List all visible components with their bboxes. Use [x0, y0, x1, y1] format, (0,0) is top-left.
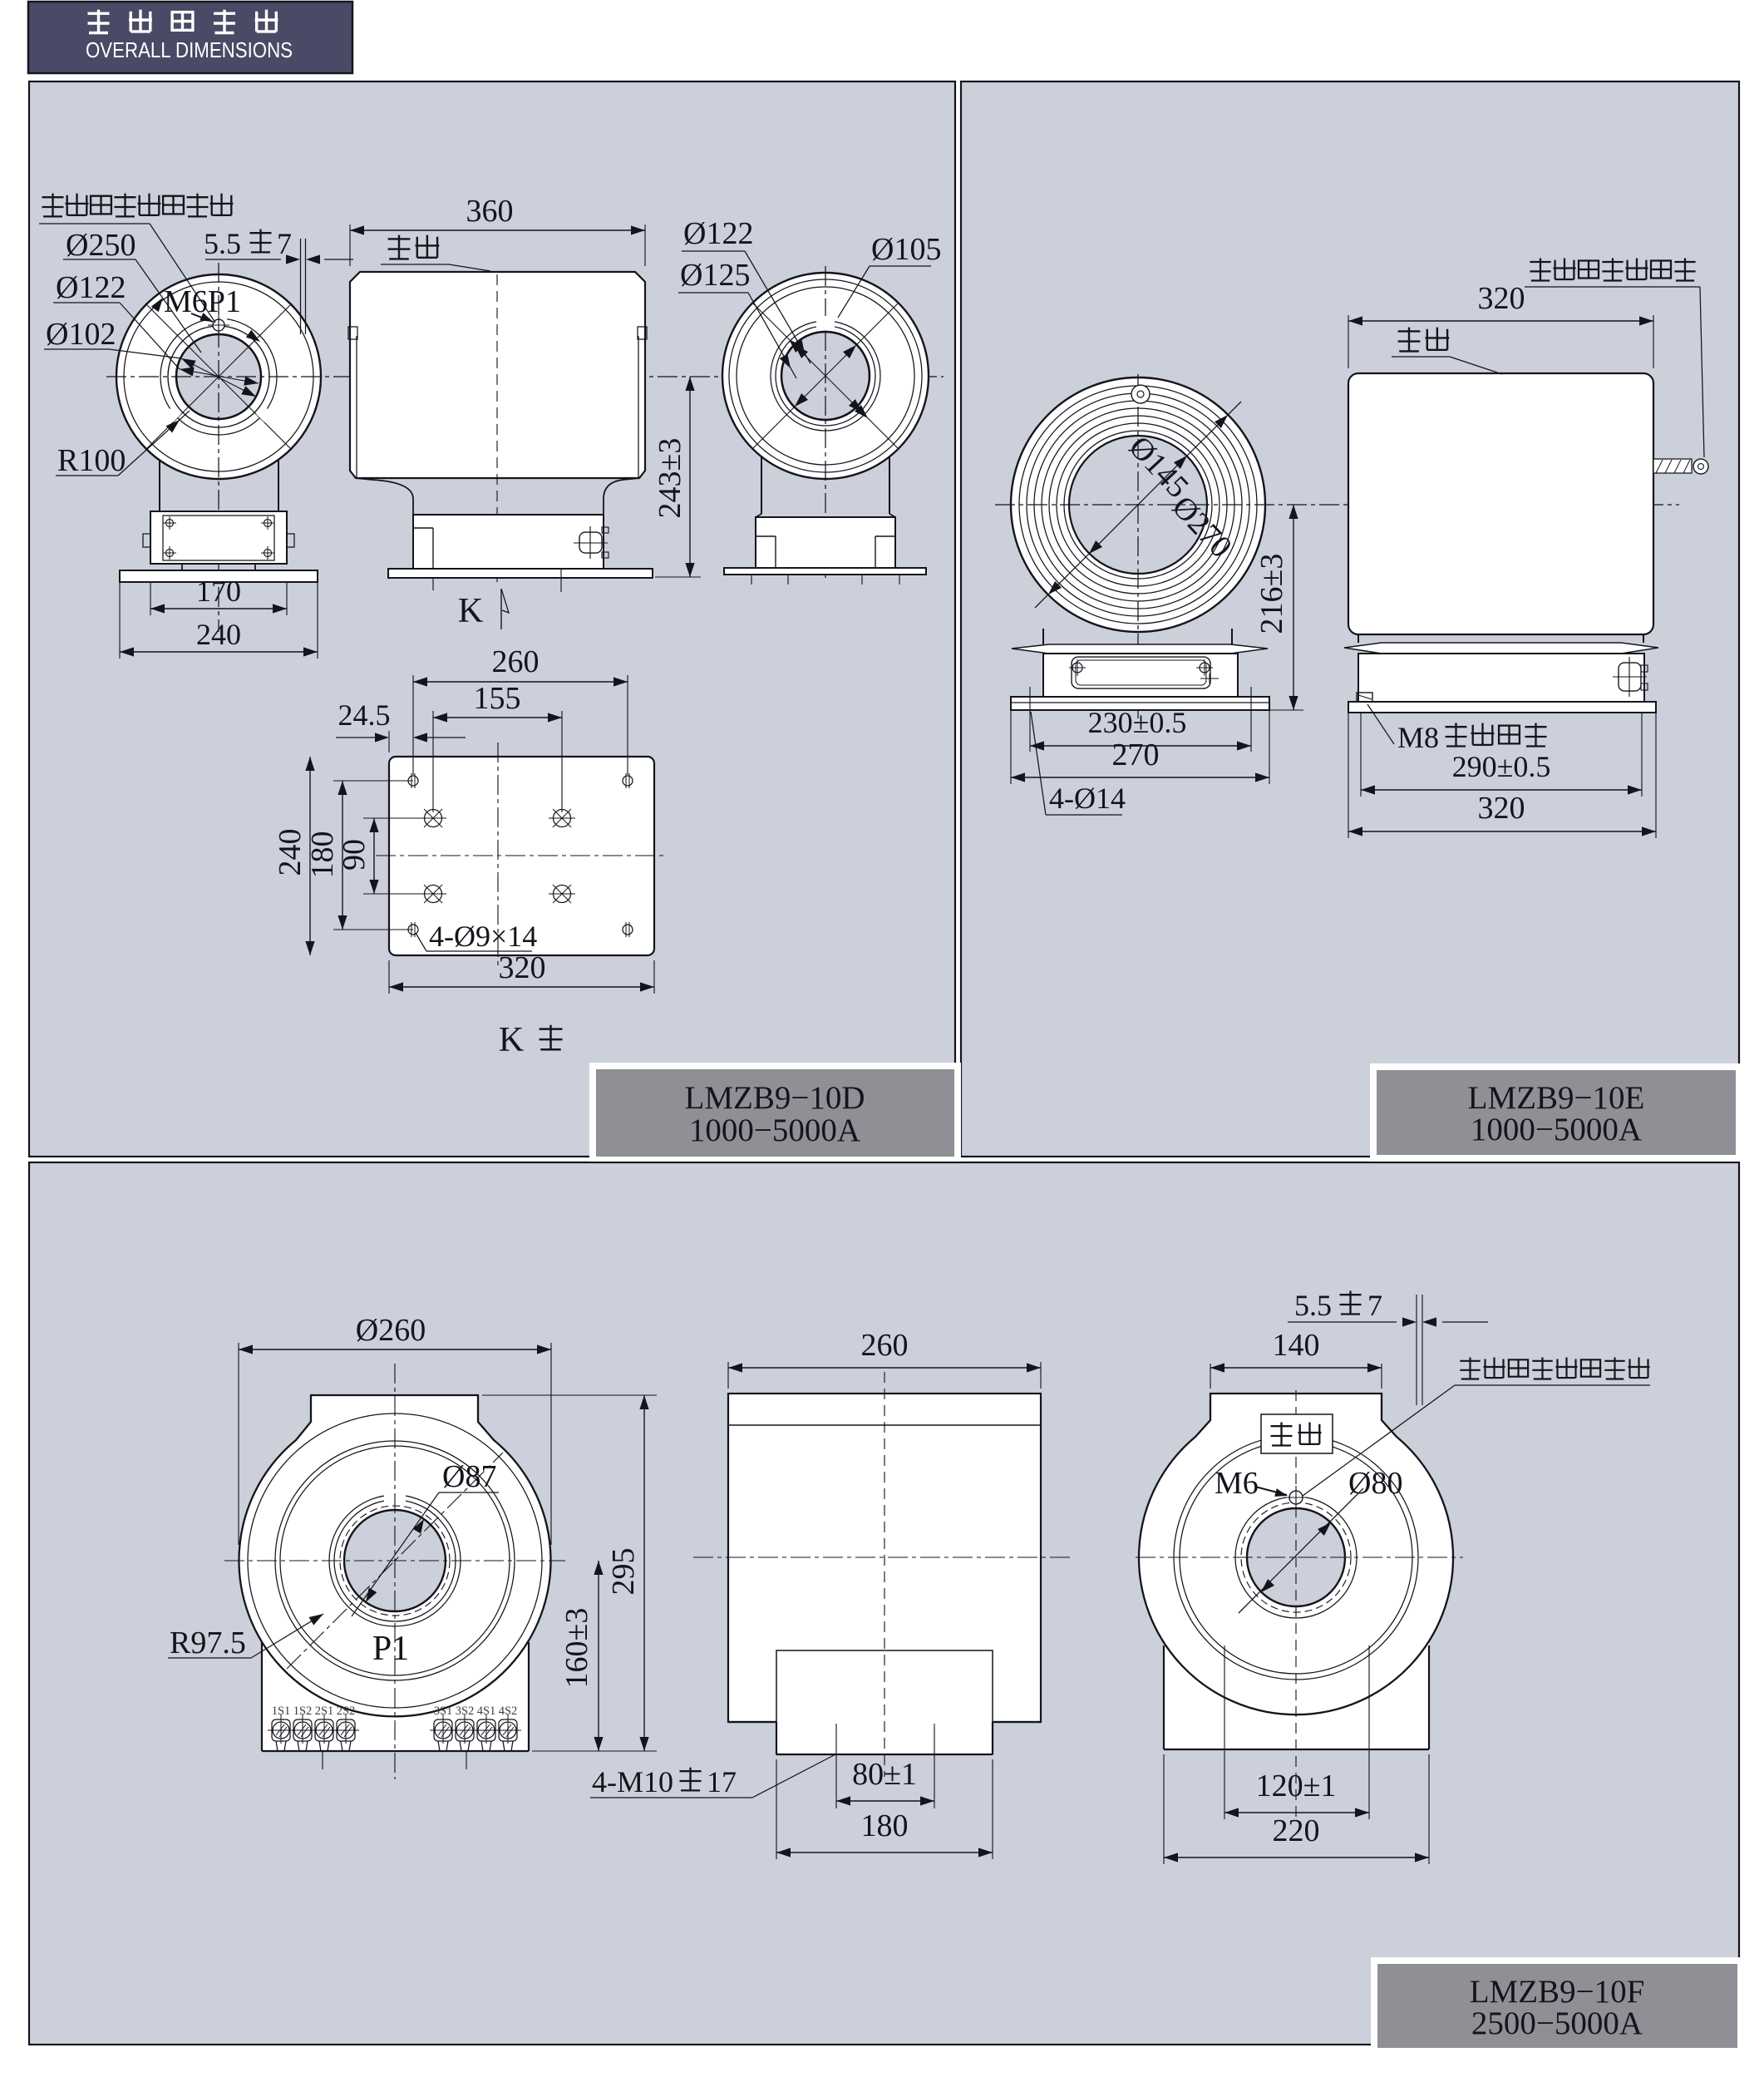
svg-text:155: 155	[474, 681, 521, 716]
svg-text:OVERALL DIMENSIONS: OVERALL DIMENSIONS	[86, 37, 293, 62]
svg-text:K: K	[458, 592, 483, 630]
svg-text:240: 240	[273, 829, 308, 876]
svg-text:Ø250: Ø250	[66, 228, 136, 263]
svg-text:M8: M8	[1397, 721, 1439, 754]
svg-text:Ø122: Ø122	[683, 216, 753, 251]
svg-text:140: 140	[1273, 1328, 1320, 1363]
svg-text:220: 220	[1273, 1813, 1320, 1848]
svg-text:290±0.5: 290±0.5	[1452, 750, 1551, 783]
svg-text:LMZB9−10E: LMZB9−10E	[1468, 1080, 1645, 1116]
svg-text:4-Ø14: 4-Ø14	[1049, 782, 1126, 815]
svg-text:2500−5000A: 2500−5000A	[1471, 2005, 1643, 2041]
svg-text:260: 260	[492, 644, 540, 679]
svg-text:17: 17	[707, 1765, 737, 1798]
svg-text:1000−5000A: 1000−5000A	[1471, 1112, 1642, 1147]
svg-text:R100: R100	[57, 443, 126, 478]
svg-text:295: 295	[606, 1548, 641, 1596]
svg-text:90: 90	[337, 839, 372, 871]
svg-text:260: 260	[861, 1328, 909, 1363]
svg-text:320: 320	[1478, 791, 1525, 826]
svg-text:5.5: 5.5	[1294, 1289, 1332, 1322]
svg-text:Ø260: Ø260	[356, 1313, 426, 1348]
svg-text:360: 360	[466, 194, 514, 229]
svg-text:120±1: 120±1	[1256, 1769, 1337, 1803]
svg-text:1000−5000A: 1000−5000A	[689, 1113, 860, 1148]
svg-text:160±3: 160±3	[559, 1608, 594, 1689]
svg-text:243±3: 243±3	[653, 438, 687, 519]
svg-text:Ø125: Ø125	[680, 258, 750, 293]
svg-text:Ø122: Ø122	[56, 270, 126, 305]
svg-text:Ø105: Ø105	[871, 232, 941, 267]
svg-text:24.5: 24.5	[338, 698, 391, 732]
svg-text:230±0.5: 230±0.5	[1088, 706, 1187, 739]
svg-text:P1: P1	[372, 1630, 409, 1668]
svg-text:4-Ø9×14: 4-Ø9×14	[429, 920, 537, 953]
svg-text:180: 180	[305, 831, 340, 879]
svg-text:320: 320	[1478, 281, 1525, 316]
svg-text:170: 170	[196, 575, 241, 608]
svg-text:Ø102: Ø102	[46, 317, 116, 352]
svg-text:5.5: 5.5	[204, 227, 241, 260]
svg-text:M6P1: M6P1	[164, 284, 241, 319]
svg-text:Ø87: Ø87	[442, 1459, 496, 1494]
svg-text:M6: M6	[1215, 1466, 1259, 1501]
svg-text:320: 320	[499, 950, 546, 985]
svg-text:180: 180	[861, 1808, 909, 1843]
svg-text:270: 270	[1112, 738, 1160, 772]
svg-text:K: K	[499, 1021, 524, 1059]
svg-text:80±1: 80±1	[852, 1757, 917, 1792]
svg-text:LMZB9−10F: LMZB9−10F	[1470, 1974, 1645, 2010]
svg-text:240: 240	[196, 618, 241, 651]
svg-text:7: 7	[1367, 1289, 1382, 1322]
svg-text:7: 7	[277, 227, 292, 260]
svg-text:R97.5: R97.5	[170, 1626, 246, 1660]
svg-text:4-M10: 4-M10	[592, 1765, 673, 1798]
svg-text:216±3: 216±3	[1254, 554, 1289, 634]
svg-text:LMZB9−10D: LMZB9−10D	[685, 1080, 865, 1116]
